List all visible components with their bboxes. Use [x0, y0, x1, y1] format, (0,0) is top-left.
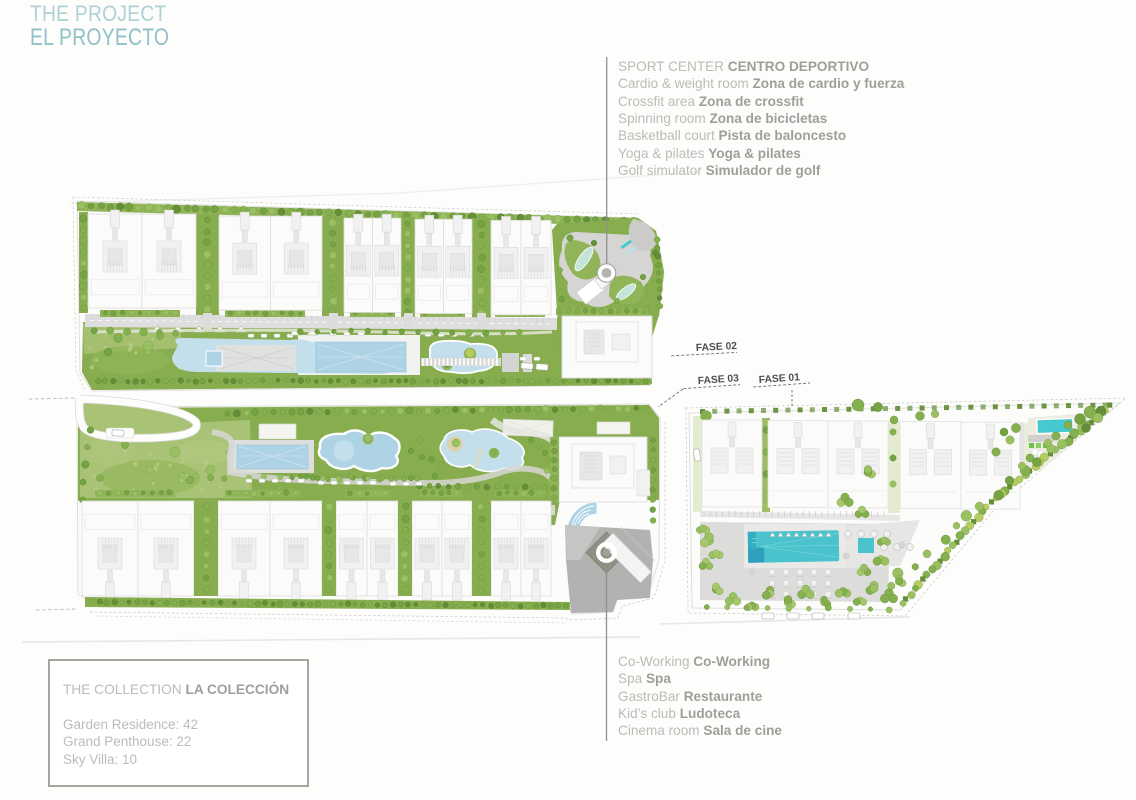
svg-text:FASE 02: FASE 02 — [696, 341, 738, 354]
